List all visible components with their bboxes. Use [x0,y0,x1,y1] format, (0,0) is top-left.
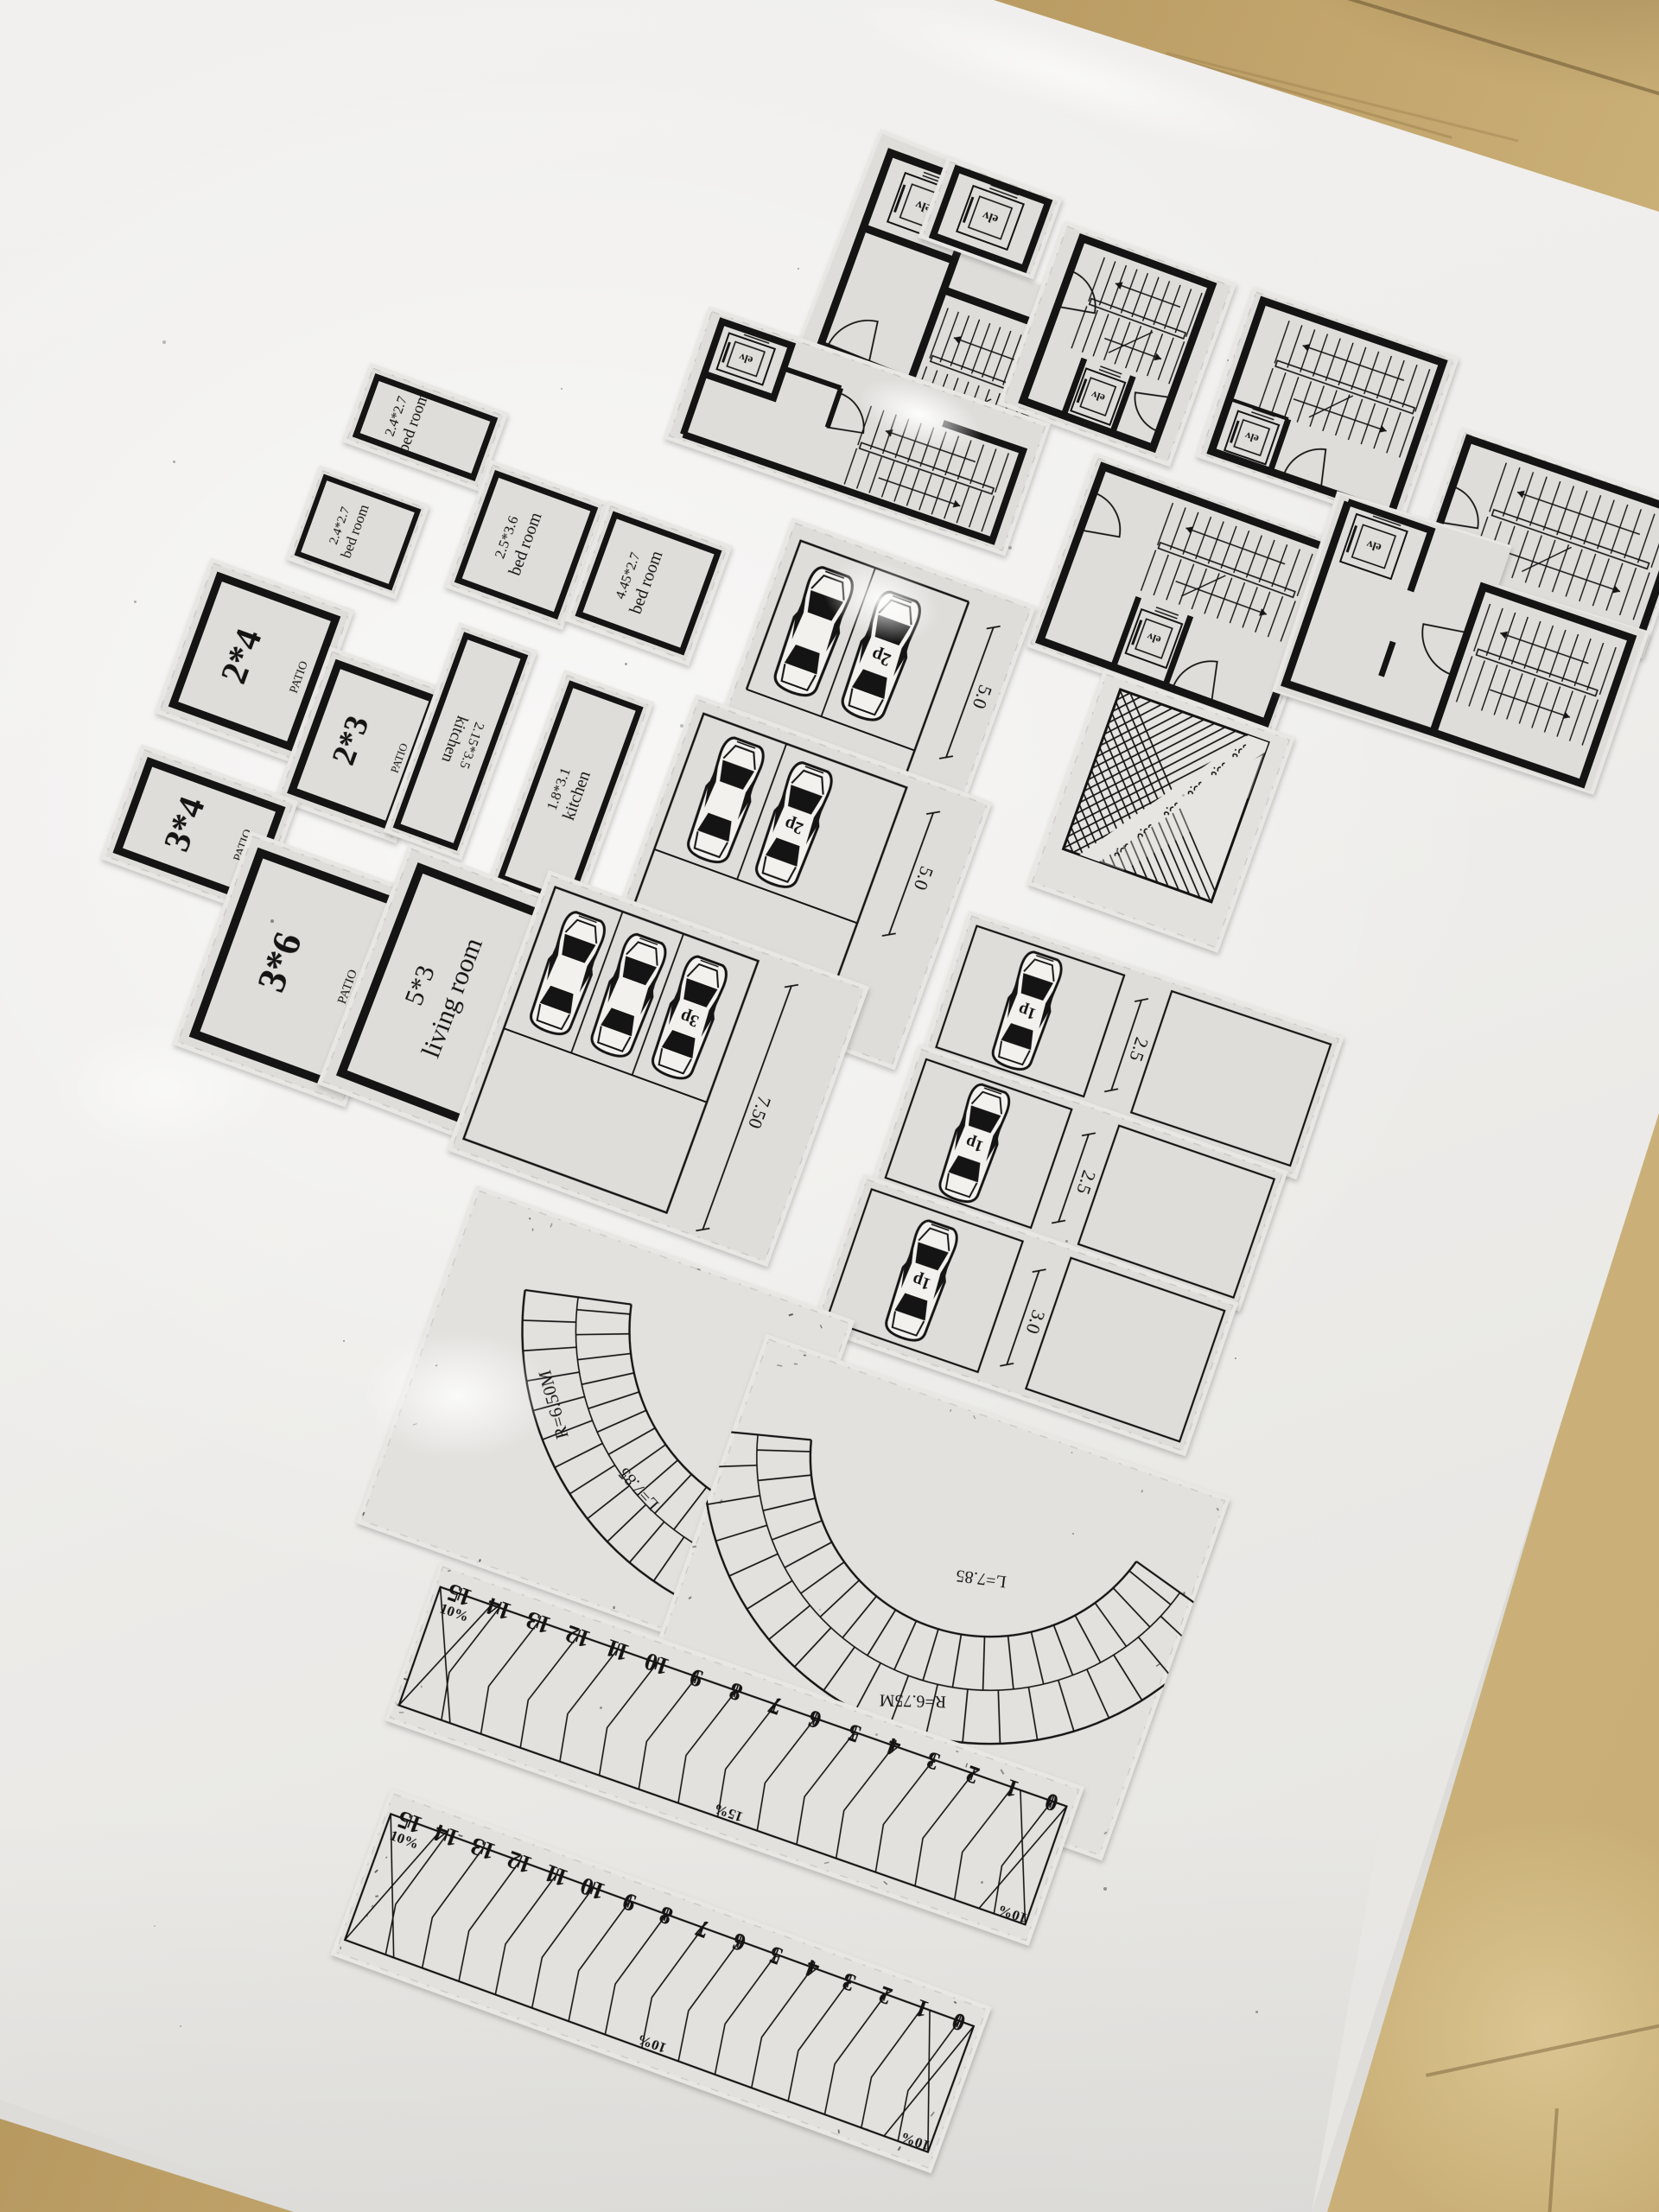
svg-text:R=6.75M: R=6.75M [879,1690,946,1711]
